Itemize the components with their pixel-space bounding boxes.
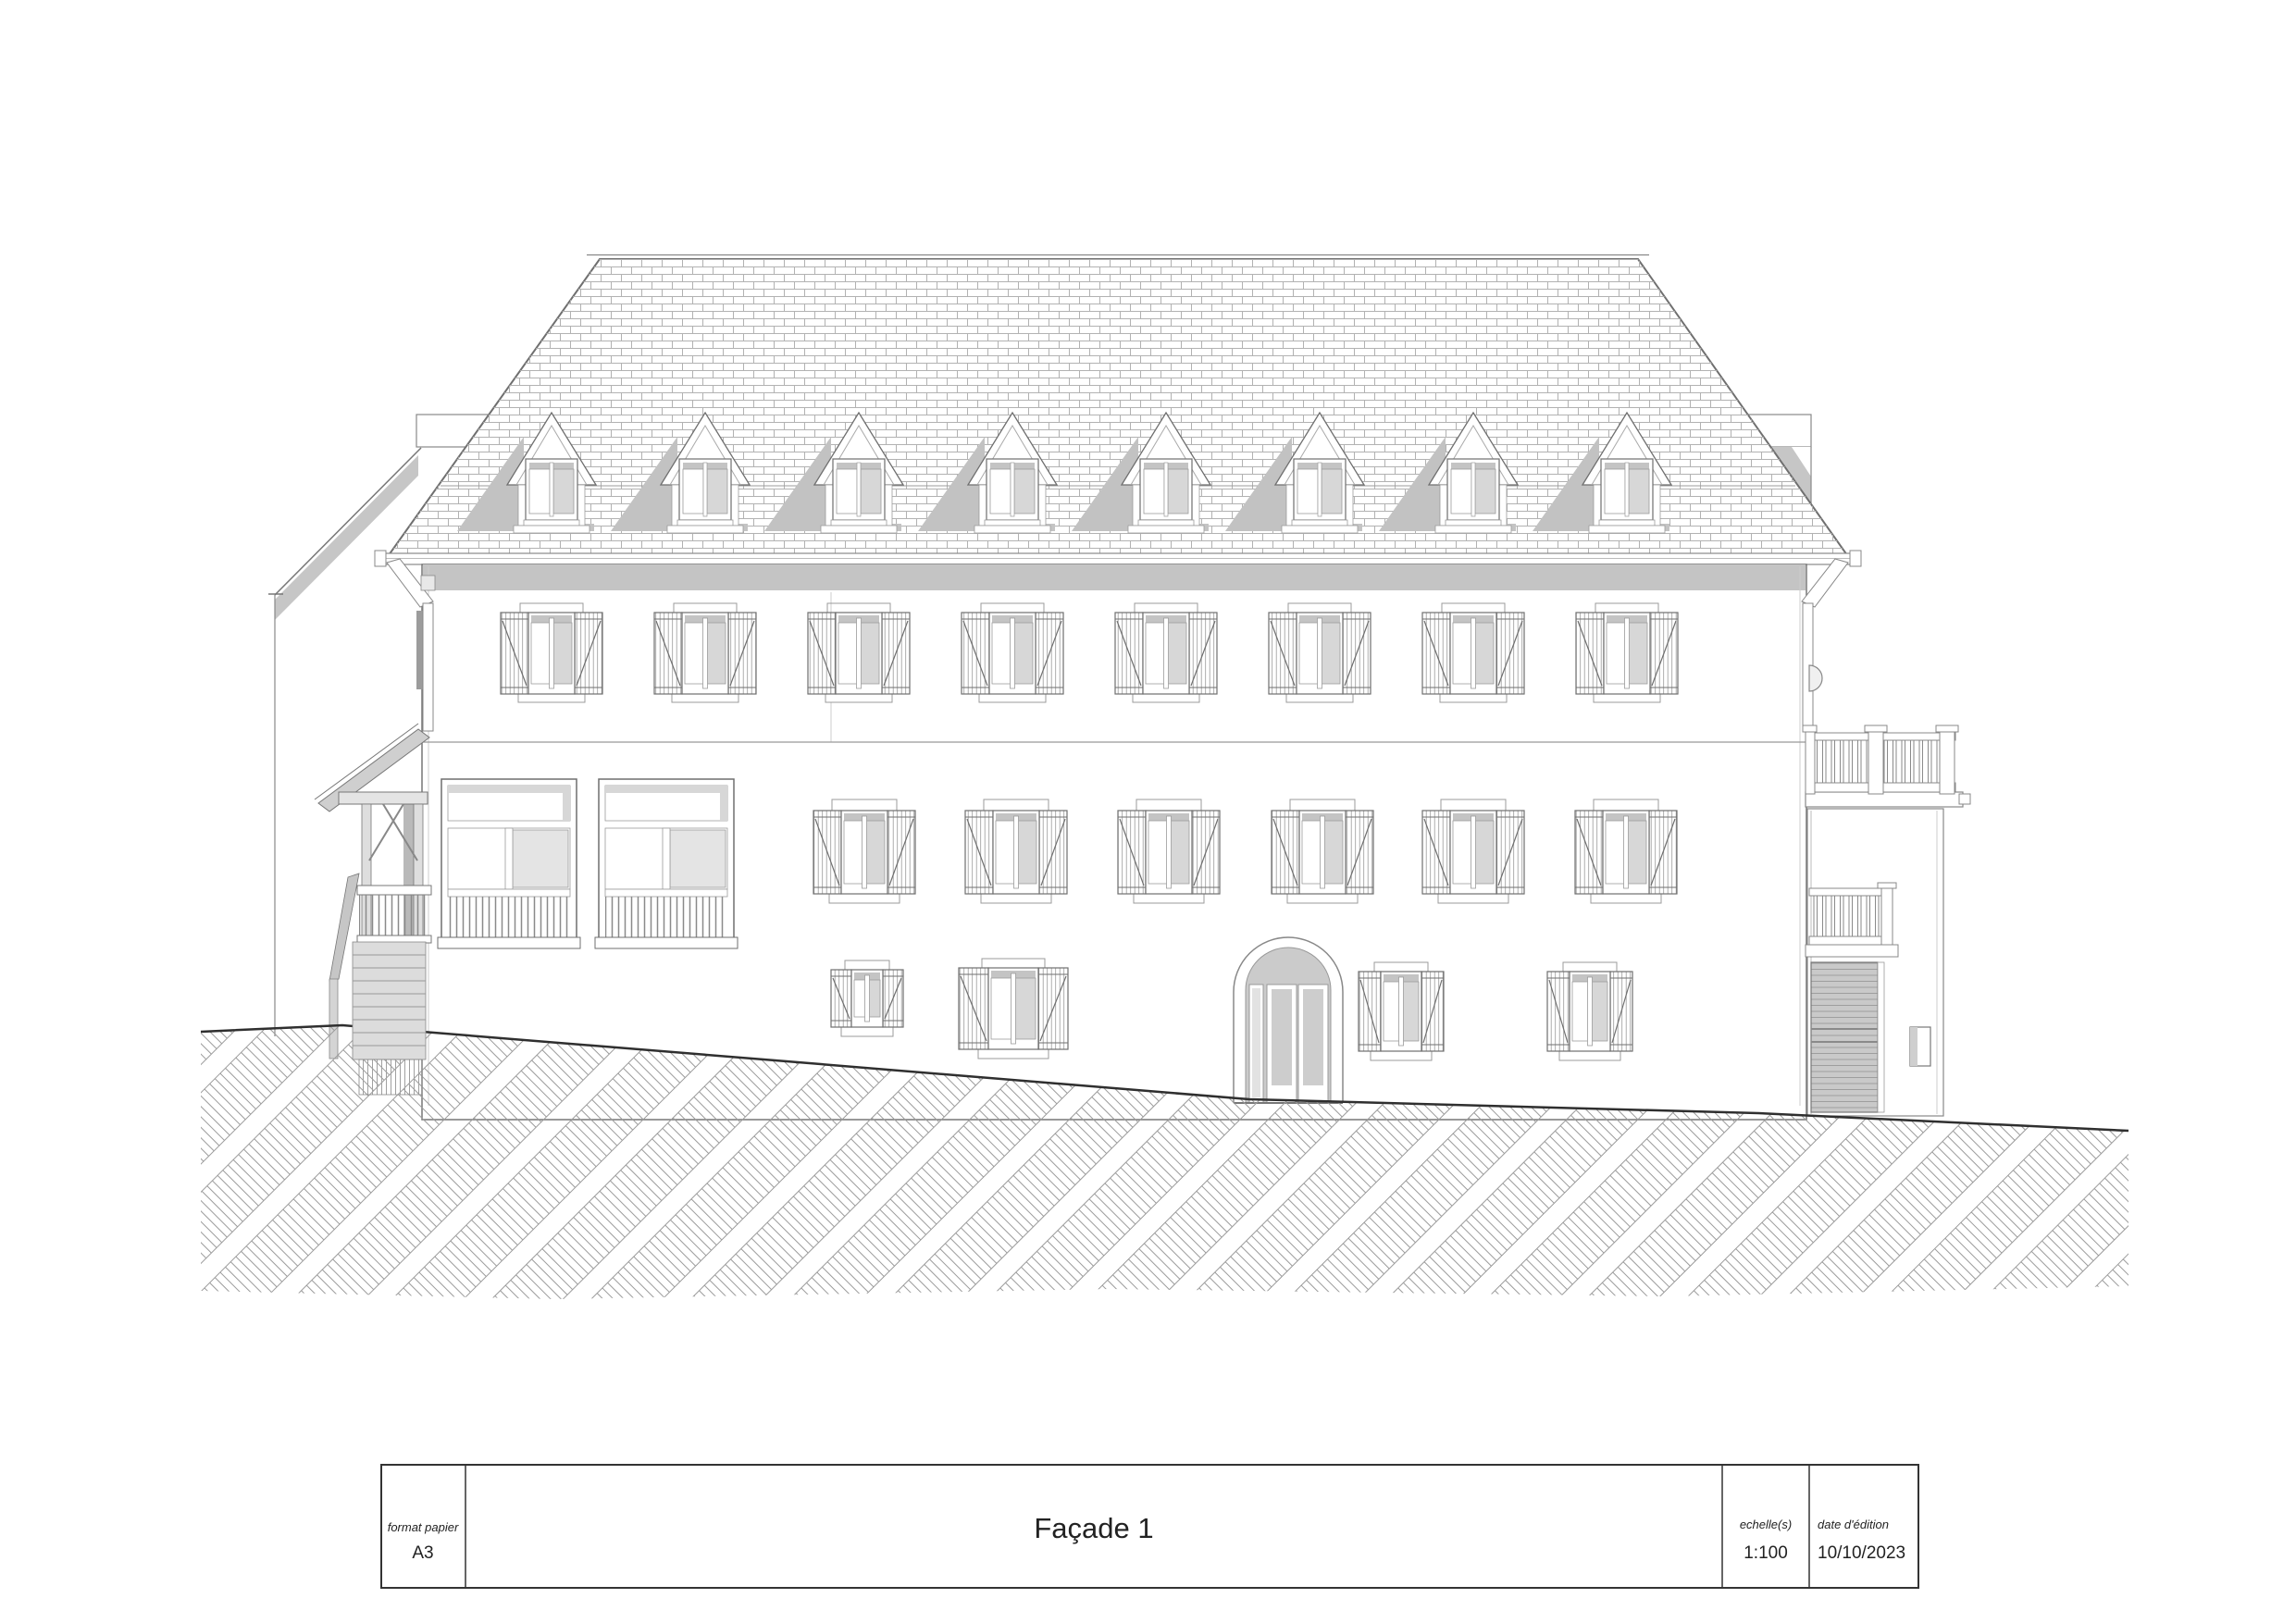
middle-floor-window bbox=[1272, 799, 1373, 903]
top-floor-window bbox=[501, 603, 602, 702]
top-floor-window bbox=[808, 603, 910, 702]
window-pane bbox=[707, 623, 726, 684]
porch-window bbox=[595, 779, 738, 948]
middle-floor-window bbox=[813, 799, 915, 903]
window-pane bbox=[1168, 623, 1186, 684]
balcony-slab-lip bbox=[1959, 794, 1970, 804]
format-value: A3 bbox=[412, 1543, 433, 1563]
right-annex-tower bbox=[1803, 665, 1970, 1116]
arched-entrance-door bbox=[1234, 937, 1343, 1103]
roller-door bbox=[1811, 962, 1878, 1112]
gutter-end-left bbox=[375, 551, 386, 566]
top-floor-window bbox=[1422, 603, 1524, 702]
window-pane bbox=[991, 978, 1011, 1039]
window-guard-balusters bbox=[448, 897, 570, 937]
dormer-sill bbox=[524, 520, 579, 526]
middle-floor-window bbox=[1118, 799, 1220, 903]
date-value: 10/10/2023 bbox=[1818, 1543, 1905, 1563]
window-pane bbox=[1148, 821, 1167, 884]
scale-label: echelle(s) bbox=[1740, 1518, 1792, 1531]
wall-box-shadow bbox=[1910, 1027, 1917, 1066]
window-pane bbox=[531, 623, 550, 684]
roller-door-jamb bbox=[1878, 962, 1884, 1112]
balcony-post-mid bbox=[1868, 729, 1883, 794]
eave-shadow-band bbox=[423, 564, 1806, 590]
dormer-sill bbox=[1292, 520, 1347, 526]
window-pane bbox=[1475, 821, 1494, 884]
window-pane bbox=[1324, 821, 1343, 884]
gutter-end-right bbox=[1850, 551, 1861, 566]
window-pane bbox=[1628, 821, 1646, 884]
window-pane bbox=[1453, 821, 1471, 884]
porch-window bbox=[438, 779, 580, 948]
window-pane bbox=[866, 821, 885, 884]
scale-value: 1:100 bbox=[1744, 1543, 1788, 1563]
window-pane bbox=[854, 980, 865, 1017]
window-pane bbox=[992, 623, 1011, 684]
top-floor-window bbox=[1115, 603, 1217, 702]
lower-balustrade-balusters bbox=[1811, 896, 1889, 936]
balcony-post-right bbox=[1940, 729, 1955, 794]
window-pane bbox=[1384, 982, 1399, 1041]
window-pane bbox=[1403, 982, 1419, 1041]
drawing-title: Façade 1 bbox=[1034, 1512, 1153, 1544]
window-pane bbox=[996, 821, 1014, 884]
top-floor-window bbox=[962, 603, 1063, 702]
format-label: format papier bbox=[388, 1520, 459, 1534]
window-pane bbox=[1014, 623, 1033, 684]
porch-balustrade-balusters bbox=[359, 895, 429, 935]
window-pane bbox=[1018, 821, 1036, 884]
balcony-post-cap bbox=[1803, 725, 1817, 732]
date-label: date d'édition bbox=[1818, 1518, 1889, 1531]
window-pane bbox=[1146, 623, 1164, 684]
balcony-post-left bbox=[1806, 729, 1815, 794]
dormer-sill bbox=[831, 520, 887, 526]
porch-window-sill bbox=[438, 937, 580, 948]
window-pane bbox=[1572, 982, 1588, 1041]
stairs bbox=[353, 942, 426, 1095]
ground-floor-window bbox=[1547, 962, 1632, 1060]
porch-balustrade-top-rail bbox=[357, 886, 431, 895]
lower-balcony-slab bbox=[1806, 945, 1898, 957]
window-pane bbox=[1302, 821, 1321, 884]
middle-floor-window bbox=[1575, 799, 1677, 903]
balcony-post-cap bbox=[1936, 725, 1958, 732]
stair-flight bbox=[353, 942, 426, 1059]
stair-base-block bbox=[359, 1059, 422, 1095]
dormer-sill bbox=[985, 520, 1040, 526]
dormer-sill bbox=[1138, 520, 1194, 526]
door-leaf-right-glass bbox=[1303, 989, 1323, 1085]
door-leaf-left-glass bbox=[1272, 989, 1292, 1085]
window-pane bbox=[1475, 623, 1494, 684]
dormer-sill bbox=[1599, 520, 1655, 526]
lower-balustrade-bottom-rail bbox=[1809, 936, 1891, 945]
window-pane bbox=[869, 980, 880, 1017]
window-pane bbox=[1607, 623, 1625, 684]
dormer-sill bbox=[677, 520, 733, 526]
window-pane bbox=[1015, 978, 1036, 1039]
facade-elevation-drawing: format papier A3 Façade 1 echelle(s) 1:1… bbox=[0, 0, 2296, 1623]
canopy-beam bbox=[339, 792, 428, 804]
balcony-post-cap bbox=[1865, 725, 1887, 732]
window-pane bbox=[1171, 821, 1189, 884]
downspout-coupling-left bbox=[421, 576, 435, 590]
title-block: format papier A3 Façade 1 echelle(s) 1:1… bbox=[381, 1465, 1918, 1588]
window-pane bbox=[1606, 821, 1624, 884]
lower-balustrade-top-rail bbox=[1809, 888, 1891, 896]
top-floor-window bbox=[1576, 603, 1678, 702]
window-pane bbox=[1629, 623, 1647, 684]
window-pane bbox=[1299, 623, 1318, 684]
top-floor-window bbox=[654, 603, 756, 702]
wall-lamp-icon bbox=[1809, 665, 1822, 691]
window-guard-balusters bbox=[605, 897, 727, 937]
lower-balustrade-post bbox=[1881, 886, 1893, 945]
lower-balustrade-post-cap bbox=[1878, 883, 1896, 888]
window-pane bbox=[1453, 623, 1471, 684]
window-pane bbox=[838, 623, 857, 684]
window-pane bbox=[861, 623, 879, 684]
middle-floor-window bbox=[965, 799, 1067, 903]
window-pane bbox=[1322, 623, 1340, 684]
door-sidelight-glass bbox=[1252, 988, 1260, 1097]
ground-floor-window bbox=[1359, 962, 1444, 1060]
ground-floor-window bbox=[959, 959, 1068, 1059]
top-floor-window bbox=[1269, 603, 1371, 702]
ground-floor-window bbox=[831, 960, 903, 1036]
window-pane bbox=[685, 623, 703, 684]
window-pane bbox=[1592, 982, 1607, 1041]
dormer-sill bbox=[1446, 520, 1501, 526]
window-pane bbox=[844, 821, 863, 884]
porch-window-sill bbox=[595, 937, 738, 948]
downspout-pipe-left bbox=[423, 603, 433, 731]
middle-floor-window bbox=[1422, 799, 1524, 903]
window-pane bbox=[553, 623, 572, 684]
downspout-elbow-right bbox=[1802, 559, 1848, 607]
